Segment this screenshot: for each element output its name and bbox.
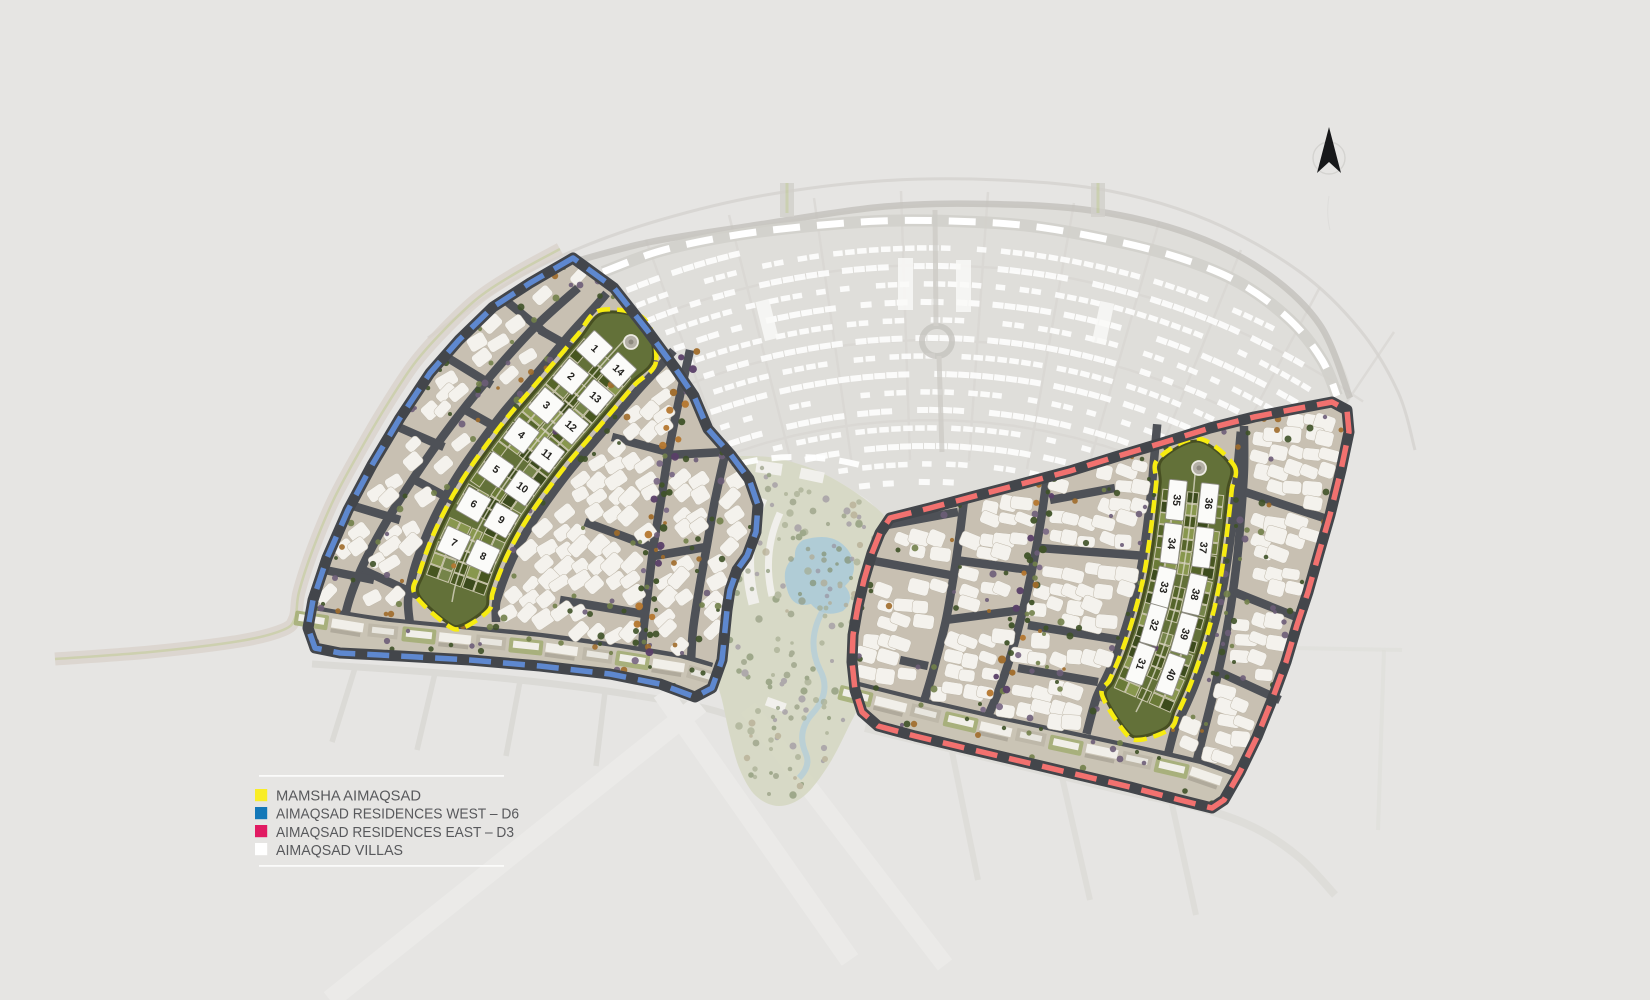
- svg-text:MAMSHA AIMAQSAD: MAMSHA AIMAQSAD: [276, 788, 421, 805]
- svg-text:AIMAQSAD RESIDENCES EAST – D3: AIMAQSAD RESIDENCES EAST – D3: [276, 824, 514, 841]
- svg-text:36: 36: [1202, 497, 1215, 510]
- svg-text:35: 35: [1170, 494, 1183, 507]
- svg-text:AIMAQSAD RESIDENCES WEST – D6: AIMAQSAD RESIDENCES WEST – D6: [276, 806, 519, 823]
- svg-text:34: 34: [1165, 537, 1178, 550]
- svg-text:37: 37: [1196, 541, 1209, 554]
- svg-text:AIMAQSAD VILLAS: AIMAQSAD VILLAS: [276, 842, 403, 859]
